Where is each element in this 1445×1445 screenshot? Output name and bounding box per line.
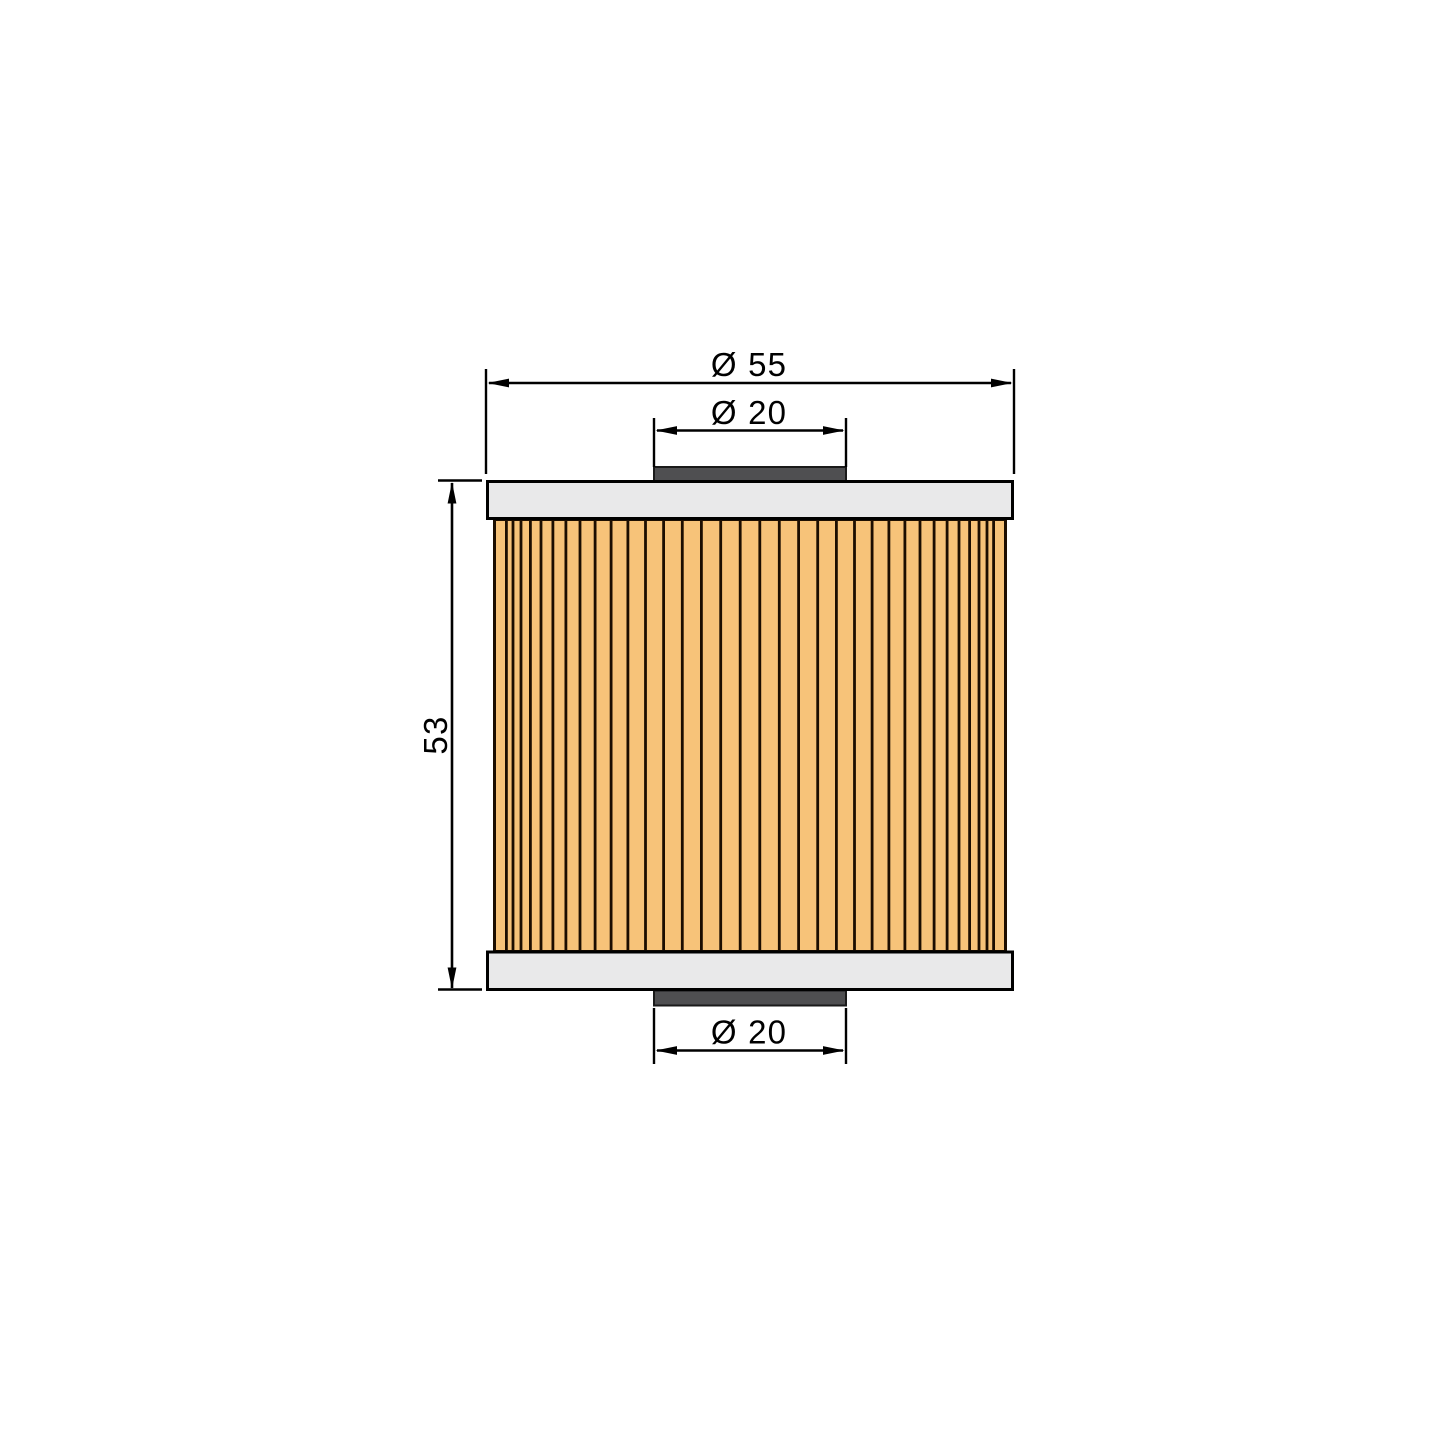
svg-text:Ø 55: Ø 55: [711, 346, 787, 383]
svg-text:Ø 20: Ø 20: [711, 394, 787, 431]
svg-text:Ø 20: Ø 20: [711, 1014, 787, 1051]
svg-text:53: 53: [417, 715, 454, 754]
